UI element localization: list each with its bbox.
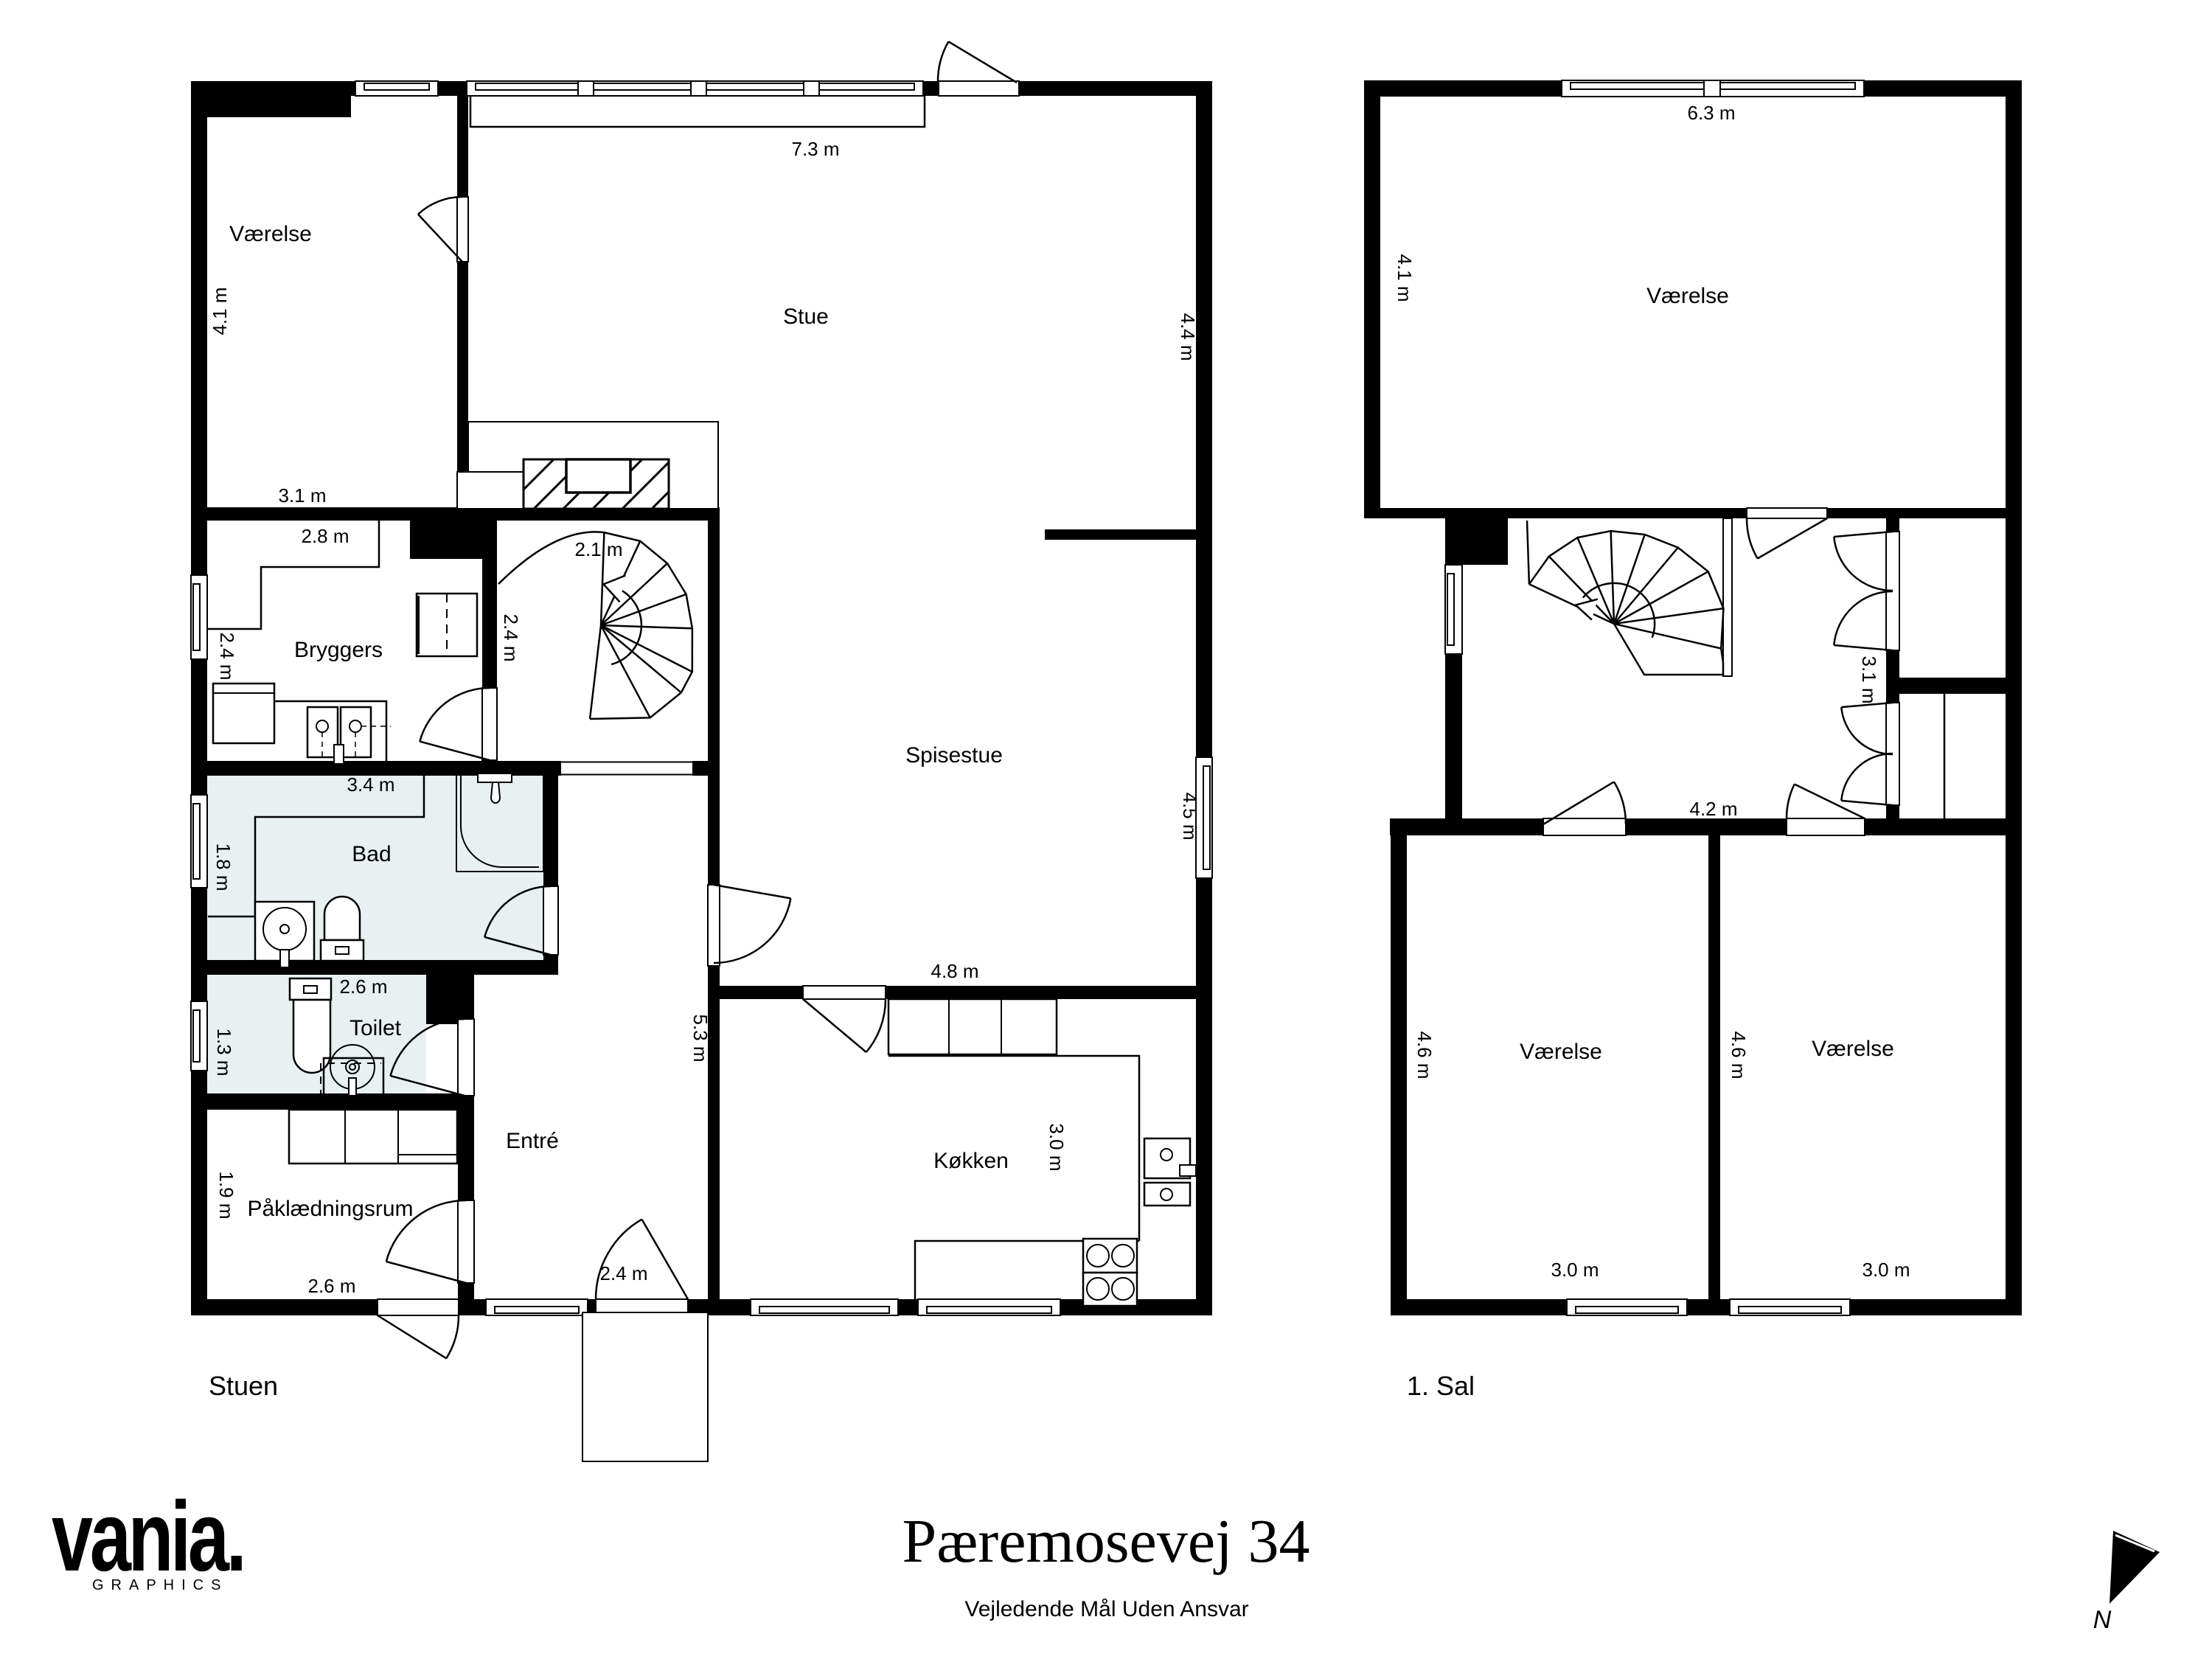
svg-text:6.3 m: 6.3 m xyxy=(1687,102,1735,124)
svg-text:Spisestue: Spisestue xyxy=(905,743,1003,768)
svg-text:4.1 m: 4.1 m xyxy=(209,287,231,335)
svg-text:2.6 m: 2.6 m xyxy=(307,1275,355,1297)
svg-text:2.4 m: 2.4 m xyxy=(599,1262,647,1284)
svg-text:2.1 m: 2.1 m xyxy=(574,538,622,560)
svg-text:4.5 m: 4.5 m xyxy=(1179,792,1201,840)
svg-text:2.8 m: 2.8 m xyxy=(301,525,349,547)
svg-text:Påklædningsrum: Påklædningsrum xyxy=(247,1197,413,1221)
svg-text:Stuen: Stuen xyxy=(209,1371,278,1401)
svg-text:N: N xyxy=(2093,1606,2112,1634)
svg-text:4.4 m: 4.4 m xyxy=(1177,313,1199,361)
svg-text:2.6 m: 2.6 m xyxy=(339,975,387,998)
svg-text:1.8 m: 1.8 m xyxy=(212,843,234,891)
svg-text:4.6 m: 4.6 m xyxy=(1413,1031,1436,1079)
svg-text:3.0 m: 3.0 m xyxy=(1046,1123,1068,1171)
svg-text:3.4 m: 3.4 m xyxy=(347,773,394,796)
svg-text:Værelse: Værelse xyxy=(1646,284,1729,308)
svg-text:4.6 m: 4.6 m xyxy=(1728,1031,1750,1079)
svg-text:Værelse: Værelse xyxy=(1812,1037,1894,1061)
svg-text:7.3 m: 7.3 m xyxy=(791,138,839,160)
svg-text:GRAPHICS: GRAPHICS xyxy=(92,1577,228,1593)
svg-text:4.2 m: 4.2 m xyxy=(1689,798,1737,820)
svg-text:Vejledende Mål Uden Ansvar: Vejledende Mål Uden Ansvar xyxy=(964,1597,1248,1621)
svg-text:2.4 m: 2.4 m xyxy=(500,613,522,661)
svg-text:3.1 m: 3.1 m xyxy=(278,484,326,507)
svg-text:Toilet: Toilet xyxy=(349,1016,402,1040)
svg-text:3.0 m: 3.0 m xyxy=(1551,1259,1599,1281)
svg-text:3.1 m: 3.1 m xyxy=(1858,655,1880,703)
svg-text:2.4 m: 2.4 m xyxy=(216,632,238,680)
svg-text:Pæremosevej 34: Pæremosevej 34 xyxy=(902,1507,1310,1576)
svg-text:1.9 m: 1.9 m xyxy=(215,1171,237,1219)
svg-text:Entré: Entré xyxy=(506,1129,559,1153)
svg-text:Bad: Bad xyxy=(352,842,391,866)
svg-text:Stue: Stue xyxy=(783,305,829,329)
svg-text:3.0 m: 3.0 m xyxy=(1862,1259,1910,1281)
svg-text:1.3 m: 1.3 m xyxy=(213,1028,235,1076)
svg-text:vania.: vania. xyxy=(52,1481,244,1592)
svg-text:5.3 m: 5.3 m xyxy=(689,1014,712,1062)
svg-text:Værelse: Værelse xyxy=(229,222,312,246)
svg-text:4.1 m: 4.1 m xyxy=(1394,254,1416,302)
svg-text:4.8 m: 4.8 m xyxy=(931,960,978,982)
svg-text:Bryggers: Bryggers xyxy=(294,638,383,662)
svg-text:1. Sal: 1. Sal xyxy=(1407,1371,1475,1401)
svg-text:Værelse: Værelse xyxy=(1520,1040,1602,1064)
svg-text:Køkken: Køkken xyxy=(933,1149,1009,1173)
